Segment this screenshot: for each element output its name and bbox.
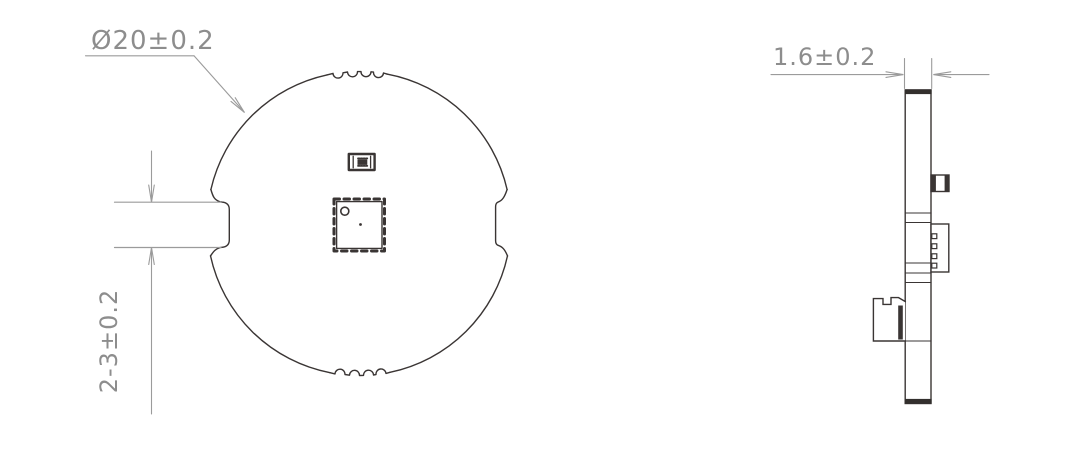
side-ic-chip xyxy=(931,224,949,272)
side-smd-connector-right-bar xyxy=(945,175,949,191)
flex-cable xyxy=(115,202,222,247)
smd-connector xyxy=(349,154,375,170)
side-board-outline xyxy=(905,90,931,404)
side-fpc-connector-contact-bar xyxy=(898,306,903,340)
side-view xyxy=(873,89,949,403)
side-board-top-cap xyxy=(905,89,932,94)
ic-chip-center-dot xyxy=(359,223,362,226)
technical-drawing-canvas: Ø20±0.2 2-3±0.2 1.6±0.2 xyxy=(0,0,1076,451)
front-view xyxy=(115,72,508,376)
side-board-bottom-cap xyxy=(905,399,932,404)
castellations-top xyxy=(327,72,387,79)
board-outline-top-left-arc xyxy=(211,75,327,190)
board-outline-bottom-right-arc xyxy=(390,256,508,372)
dim-cable-width-label: 2-3±0.2 xyxy=(97,289,121,393)
side-fpc-connector xyxy=(873,298,905,341)
dim-cable-width-lines xyxy=(149,151,155,414)
smd-connector-contact-block xyxy=(358,159,368,165)
right-notch xyxy=(496,190,508,256)
side-smd-connector-left-bar xyxy=(931,175,936,191)
board-outline-bottom-left-arc xyxy=(211,256,331,373)
dim-diameter-leader xyxy=(86,56,245,113)
drawing-lineart xyxy=(0,0,1076,451)
ic-chip xyxy=(334,199,385,251)
side-smd-connector xyxy=(931,175,949,192)
dim-diameter-leader-line xyxy=(194,56,244,113)
board-outline-top-right-arc xyxy=(387,74,507,189)
castellations-bottom xyxy=(330,369,390,376)
dim-diameter-label: Ø20±0.2 xyxy=(91,28,215,54)
dim-thickness-label: 1.6±0.2 xyxy=(773,45,876,69)
left-notch-cable-nose xyxy=(211,190,230,256)
